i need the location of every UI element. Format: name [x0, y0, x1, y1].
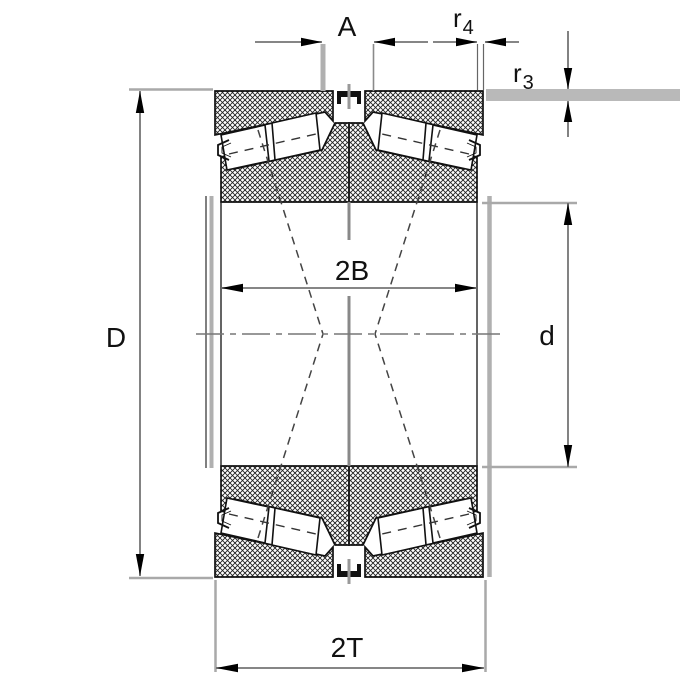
housing-shoulder-band: [486, 89, 680, 101]
arrowhead: [221, 284, 243, 292]
arrowhead: [216, 664, 238, 672]
label-r3-base: r: [513, 58, 522, 88]
label-D: D: [106, 322, 126, 353]
arrowhead: [136, 91, 144, 113]
arrowhead: [564, 101, 572, 122]
label-r4-subscript: 4: [463, 17, 474, 39]
arrowhead: [455, 284, 477, 292]
arrowhead: [136, 554, 144, 576]
arrowhead: [564, 445, 572, 467]
label-r3-subscript: 3: [523, 72, 534, 94]
bearing-drawing-canvas: A r4 r3 D d 2B 2T: [0, 0, 680, 680]
label-r3: r3: [513, 58, 534, 94]
bearing-cross-section-svg: A r4 r3 D d 2B 2T: [0, 0, 680, 680]
label-r4: r4: [453, 3, 474, 39]
arrowhead: [564, 203, 572, 225]
label-2T: 2T: [331, 632, 364, 663]
arrowhead: [485, 38, 506, 46]
bearing-quadrant-top-left: [215, 84, 349, 334]
bearing-quadrant-top-right: [349, 84, 483, 334]
bearing-quadrant-bottom-right: [349, 334, 483, 584]
arrowhead: [301, 38, 322, 46]
arrowhead: [564, 68, 572, 89]
arrowhead: [374, 38, 395, 46]
arrowhead: [462, 664, 484, 672]
arrowhead: [456, 38, 477, 46]
label-r4-base: r: [453, 3, 462, 33]
bearing-quadrant-bottom-left: [215, 334, 349, 584]
label-A: A: [338, 11, 357, 42]
label-d: d: [539, 320, 555, 351]
label-2B: 2B: [335, 255, 369, 286]
